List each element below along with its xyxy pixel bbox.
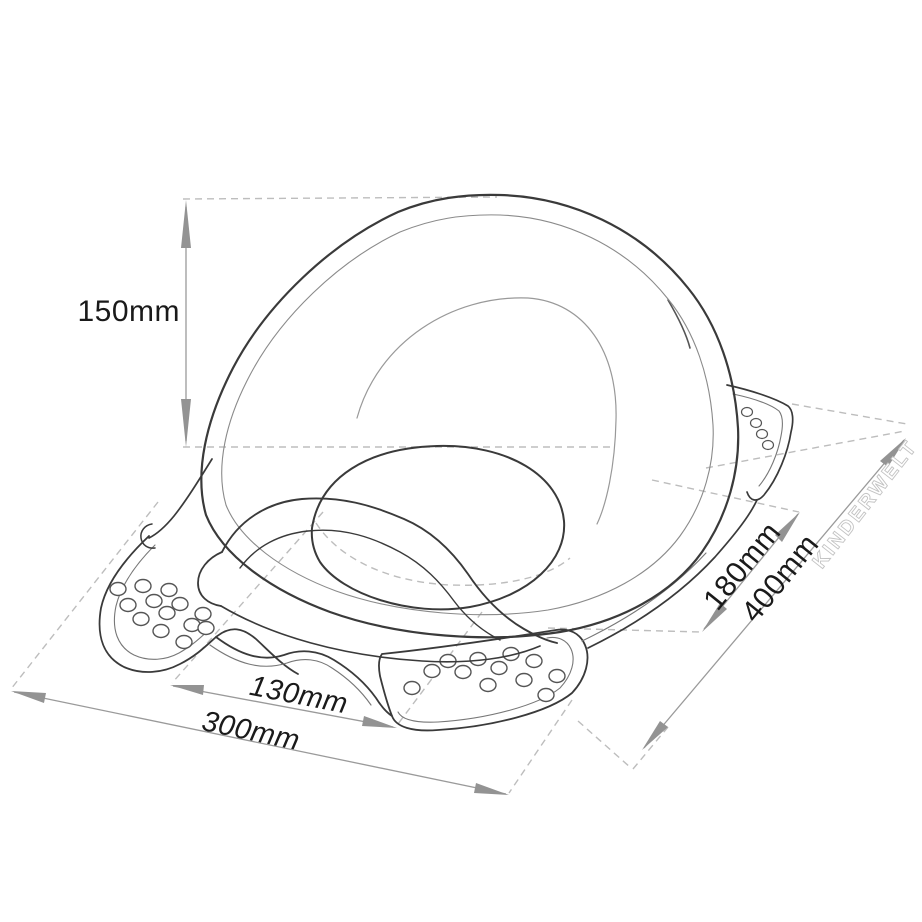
seat-opening [312, 446, 564, 609]
base-rear-flap [727, 385, 793, 500]
technical-drawing-canvas: 150mm 130mm 300mm 180mm 400mm KINDERWELT… [0, 0, 922, 922]
grip-dots-rear-flap [742, 408, 774, 450]
extension-line [633, 727, 668, 769]
construction-lines [11, 197, 907, 793]
seat-backrest-inner-segment [668, 300, 690, 348]
base-right-edge-inner [582, 553, 706, 641]
arrowhead-up [181, 200, 191, 248]
arrowhead-left [11, 691, 46, 703]
technical-drawing-page: 150mm 130mm 300mm 180mm 400mm KINDERWELT… [0, 0, 922, 922]
hidden-opening-arc [316, 523, 570, 585]
base-rear-flap-inner [733, 394, 782, 486]
grip-dots-right-wing [404, 648, 565, 702]
seat-ring-inner-edge [222, 215, 714, 615]
seat-backrest-inner-curve [357, 298, 616, 524]
arrowhead-down [181, 399, 191, 447]
extension-line [509, 700, 572, 793]
arrowhead-left [170, 685, 204, 695]
seat-ring-outline [201, 195, 738, 637]
extension-line [578, 721, 631, 768]
splash-guard-top [222, 498, 557, 643]
dimension-outer-width-300mm: 300mm [11, 691, 509, 795]
dimension-height-150mm: 150mm [77, 200, 191, 447]
arrowhead-right [474, 783, 509, 795]
base-plate [100, 385, 793, 730]
brand-watermark-text: KINDERWELT [808, 436, 922, 573]
dimension-label-150mm: 150mm [77, 295, 180, 328]
extension-line [11, 502, 158, 689]
splash-guard-curl [198, 552, 222, 606]
brand-watermark: KINDERWELT ⚙ [808, 395, 922, 575]
seat-body [198, 195, 738, 662]
dimension-label-300mm: 300mm [199, 705, 303, 757]
extension-line [792, 404, 907, 424]
dimension-label-130mm: 130mm [247, 670, 350, 720]
arrowhead-lower [642, 721, 668, 750]
arrowhead-right [362, 716, 397, 728]
